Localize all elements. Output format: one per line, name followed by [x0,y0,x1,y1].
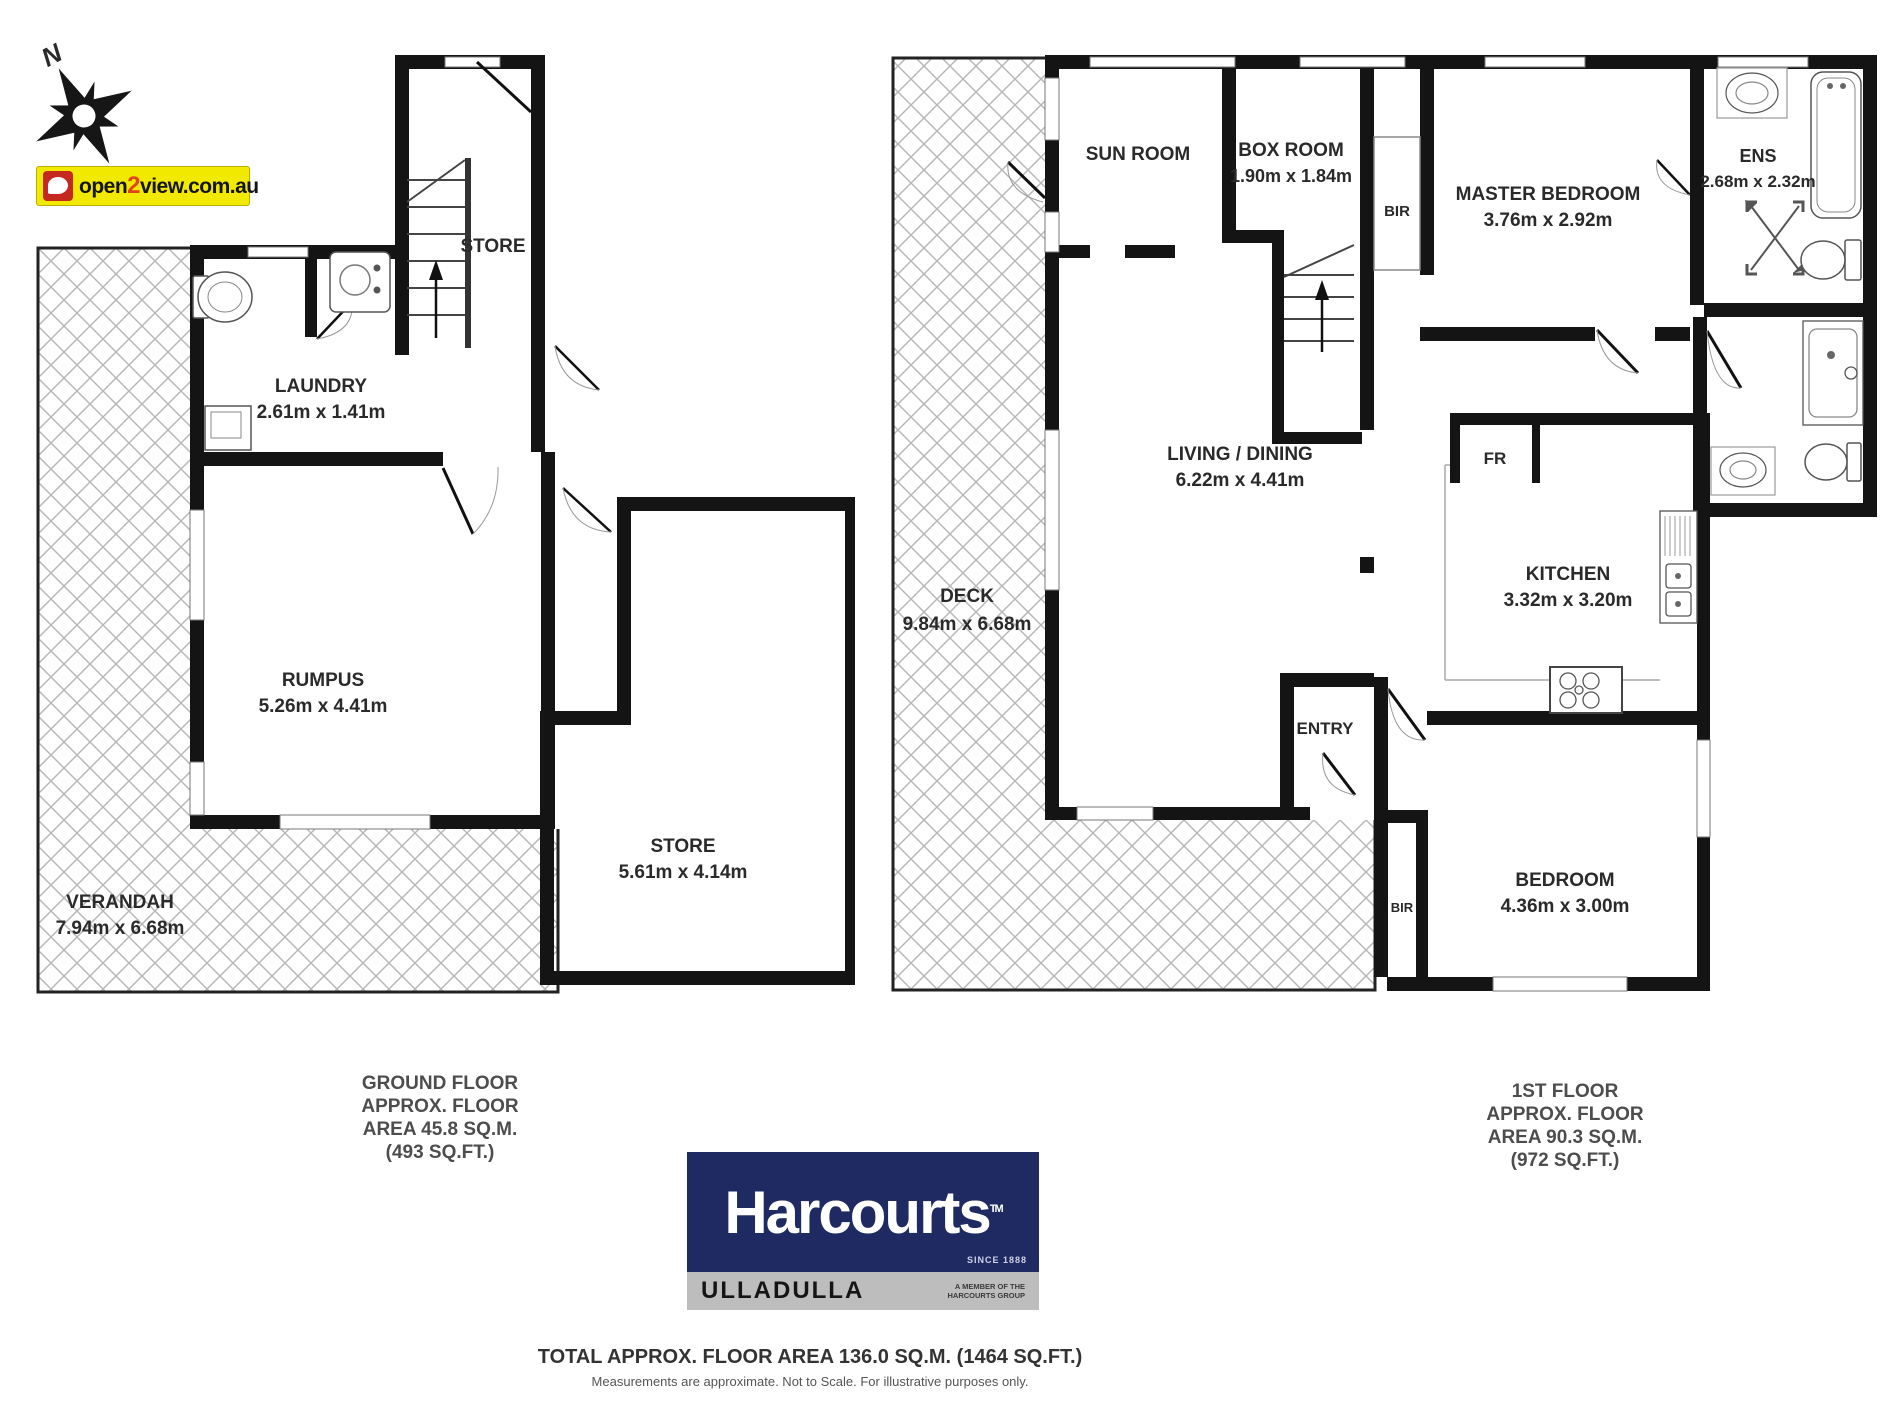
kitchen-fixtures [1445,465,1697,713]
caption-line: AREA 45.8 SQ.M. [320,1118,560,1141]
door-swing [1657,160,1690,195]
window [445,57,500,67]
window [1493,977,1627,991]
room-dims-verandah: 7.94m x 6.68m [56,918,185,939]
wall [203,452,443,466]
room-label-rumpus: RUMPUS [282,670,364,691]
room-label-sun-room: SUN ROOM [1086,144,1191,165]
harcourts-logo: HarcourtsTM SINCE 1888 ULLADULLA A MEMBE… [687,1152,1039,1310]
wall [845,497,855,985]
wall [1360,55,1374,430]
wall [617,497,631,725]
vanity-icon [1803,321,1863,425]
bathroom-fixtures [1711,321,1863,495]
room-dims-ens: 2.68m x 2.32m [1700,172,1815,191]
room-label-master-bedroom: MASTER BEDROOM [1456,184,1641,205]
wall [540,711,631,725]
window [1090,57,1235,67]
caption-line: APPROX. FLOOR [1445,1103,1685,1126]
room-label-box-room: BOX ROOM [1238,140,1344,161]
room-label-bir-bottom: BIR [1391,900,1414,915]
window [1045,212,1059,252]
wall [1704,303,1863,317]
room-dims-laundry: 2.61m x 1.41m [257,402,386,423]
toilet-icon [193,272,252,322]
total-floor-area: TOTAL APPROX. FLOOR AREA 136.0 SQ.M. (14… [460,1346,1160,1369]
window [1045,78,1059,140]
shower-icon [1745,200,1805,274]
caption-line: GROUND FLOOR [320,1072,560,1095]
wall [540,971,855,985]
caption-line: (493 SQ.FT.) [320,1141,560,1164]
wall [1420,327,1595,341]
door-swing [1597,330,1638,373]
window [1485,57,1585,67]
room-label-ens: ENS [1739,146,1776,166]
basin-icon [1717,68,1787,118]
wall [1222,230,1284,243]
caption-line: APPROX. FLOOR [320,1095,560,1118]
room-label-entry: ENTRY [1297,719,1355,738]
window [1300,57,1405,67]
room-dims-living-dining: 6.22m x 4.41m [1176,470,1305,491]
window [248,247,308,257]
basin-icon [1711,447,1775,495]
wall [1420,55,1434,275]
harcourts-office-name: ULLADULLA [701,1277,864,1305]
wall [1388,810,1428,823]
sink-icon [1660,511,1697,623]
room-label-bir-top: BIR [1384,203,1410,220]
room-dims-master-bedroom: 3.76m x 2.92m [1484,210,1613,231]
wall [1450,413,1540,425]
door-swing [1323,753,1355,795]
wall [1222,55,1236,230]
floorplan-page: N open2view.com.au [0,0,1900,1425]
toilet-icon [1801,240,1861,280]
harcourts-logo-navy: HarcourtsTM SINCE 1888 [687,1152,1039,1272]
door-swing [443,467,498,534]
room-label-verandah: VERANDAH [66,892,174,913]
wall [1416,823,1428,977]
window [1045,430,1059,590]
first-floor-plan: DECK 9.84m x 6.68m SUN ROOM BOX ROOM 1.9… [885,40,1890,1015]
wall [531,355,545,452]
caption-line: AREA 90.3 SQ.M. [1445,1126,1685,1149]
room-label-kitchen: KITCHEN [1526,564,1610,585]
wall [1272,243,1284,432]
room-label-store: STORE [650,836,715,857]
wall [395,55,409,355]
room-dims-box-room: 1.90m x 1.84m [1230,166,1352,186]
room-dims-deck: 9.84m x 6.68m [903,614,1032,635]
first-floor-caption: 1ST FLOOR APPROX. FLOOR AREA 90.3 SQ.M. … [1445,1080,1685,1172]
disclaimer: Measurements are approximate. Not to Sca… [460,1374,1160,1389]
door-swing [477,62,531,112]
harcourts-since-label: SINCE 1888 [967,1255,1027,1265]
wall [1450,413,1460,483]
deck-area [893,58,1375,990]
harcourts-brand-name: HarcourtsTM [724,1178,1001,1247]
door-swing [555,346,599,390]
wall [1374,677,1388,977]
wall [1540,413,1697,425]
wall [1272,432,1362,444]
window [190,510,204,620]
laundry-trough-icon [330,252,390,312]
wall [1863,55,1877,517]
verandah-area [38,248,558,992]
door-swing [563,488,611,532]
room-label-bedroom: BEDROOM [1515,870,1614,891]
wall [1280,673,1374,687]
wall [1697,413,1710,991]
wall [305,245,317,337]
window [190,762,204,815]
footer: TOTAL APPROX. FLOOR AREA 136.0 SQ.M. (14… [460,1346,1160,1389]
door-swing [1707,331,1741,388]
room-dims-rumpus: 5.26m x 4.41m [259,696,388,717]
room-label-laundry: LAUNDRY [275,376,368,397]
caption-line: 1ST FLOOR [1445,1080,1685,1103]
wall [531,55,545,355]
wall [540,725,554,985]
room-label-deck: DECK [940,586,994,607]
wall [1532,413,1540,483]
room-label-living-dining: LIVING / DINING [1167,444,1313,465]
wall [1125,245,1175,258]
room-label-fr: FR [1484,449,1507,468]
ground-floor-plan: VERANDAH 7.94m x 6.68m STORE LAUNDRY 2.6… [25,40,855,1025]
wall [1360,557,1374,573]
harcourts-office-bar: ULLADULLA A MEMBER OF THE HARCOURTS GROU… [687,1272,1039,1310]
ground-floor-caption: GROUND FLOOR APPROX. FLOOR AREA 45.8 SQ.… [320,1072,560,1164]
trademark-symbol: TM [990,1203,1002,1215]
stairs-icon [1284,245,1354,352]
wall [1693,503,1877,517]
room-dims-kitchen: 3.32m x 3.20m [1504,590,1633,611]
window [280,815,430,829]
bathtub-icon [1811,72,1861,218]
wall [617,497,855,511]
window [1697,740,1710,837]
laundry-tub-icon [205,406,251,450]
window [1718,57,1808,67]
wall [1280,687,1294,810]
door-swing [1388,689,1425,740]
room-dims-store: 5.61m x 4.14m [619,862,748,883]
toilet-icon [1805,443,1861,481]
window [1077,807,1153,820]
stove-icon [1550,667,1622,713]
caption-line: (972 SQ.FT.) [1445,1149,1685,1172]
wall [1655,327,1690,341]
room-label-store-upper: STORE [460,236,525,257]
room-dims-bedroom: 4.36m x 3.00m [1501,896,1630,917]
harcourts-member-label: A MEMBER OF THE HARCOURTS GROUP [947,1282,1025,1301]
